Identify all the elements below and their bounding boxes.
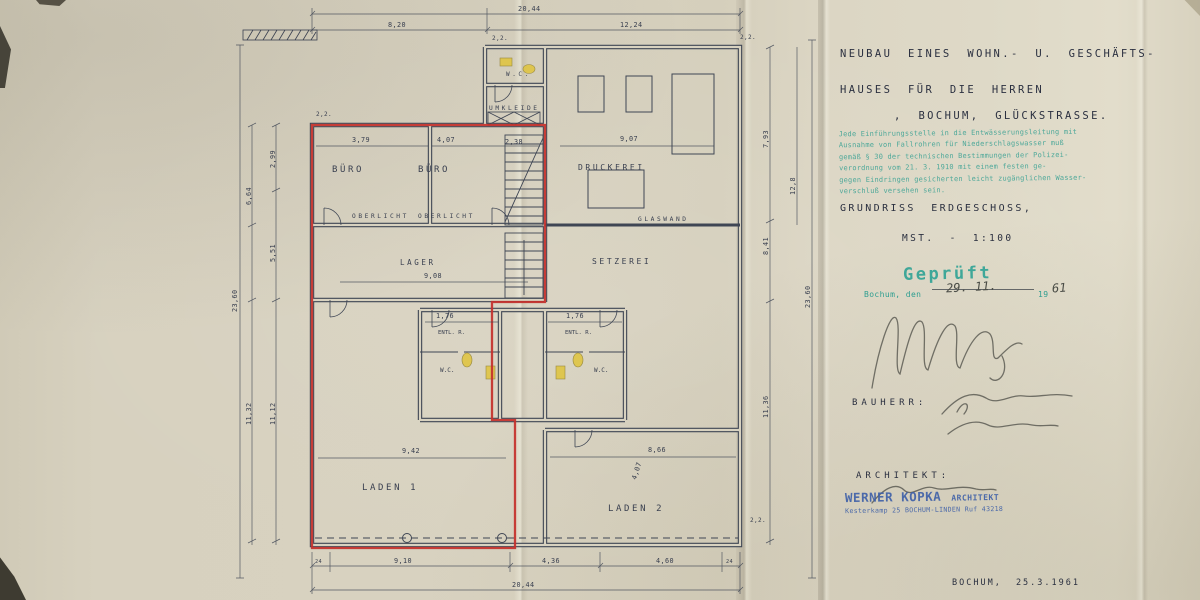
dim-laden1-w: 9,42 <box>402 447 420 455</box>
room-label-lager: LAGER <box>400 258 436 267</box>
dim-lager-w: 9,08 <box>424 272 442 280</box>
corner-mark-2: 2,2. <box>492 35 508 42</box>
room-label-umkleide: UMKLEIDE <box>489 105 540 112</box>
dim-bot-b: 4,36 <box>542 557 560 565</box>
staircase <box>505 135 543 298</box>
corner-mark-1: 2,2. <box>316 111 332 118</box>
title-line-3: , BOCHUM, GLÜCKSTRASSE. <box>894 110 1109 122</box>
dim-left-e: 11,12 <box>269 403 277 425</box>
dim-total-top: 20,44 <box>518 5 540 13</box>
room-label-wc-right: W.C. <box>594 367 608 374</box>
label-entl-right: ENTL. R. <box>565 330 592 336</box>
architect-stamp-title: ARCHITEKT <box>951 493 999 503</box>
dim-left-b: 11,32 <box>245 403 253 425</box>
corner-mark-3: 2,2. <box>740 34 756 41</box>
dim-left-d: 5,51 <box>269 244 277 262</box>
dim-laden2-w: 8,66 <box>648 446 666 454</box>
label-entl-left: ENTL. R. <box>438 330 465 336</box>
dim-right-total: 23,60 <box>804 286 812 308</box>
storefront-line <box>315 534 738 543</box>
dim-wc-right-w: 1,76 <box>566 312 584 320</box>
room-label-druckerei: DRUCKEREI <box>578 163 645 172</box>
approval-place-line: Bochum, den <box>864 290 921 299</box>
dim-24-right: 24 <box>726 559 733 565</box>
approval-year-printed: 19 <box>1038 290 1048 299</box>
dim-total-bottom: 20,44 <box>512 581 534 589</box>
approval-date-handwritten: 29. 11. <box>946 279 997 296</box>
approval-year-handwritten: 61 <box>1052 281 1067 296</box>
bauherr-signature-2 <box>948 422 1058 434</box>
corner-mark-4: 2,2. <box>750 517 766 524</box>
architect-office-stamp: WERNER KOPKAARCHITEKT Kesterkamp 25 BOCH… <box>845 485 1003 515</box>
drainage-regulation-stamp: Jede Einführungsstelle in die Entwässeru… <box>839 127 1087 198</box>
drawing-title: GRUNDRISS ERDGESCHOSS, <box>840 203 1032 214</box>
room-label-setzerei: SETZEREI <box>592 257 651 266</box>
scanned-floor-plan-sheet: BÜRO BÜRO OBERLICHT OBERLICHT LAGER DRUC… <box>0 0 1200 600</box>
title-line-1: NEUBAU EINES WOHN.- U. GESCHÄFTS- <box>840 48 1156 60</box>
room-label-laden1: LADEN 1 <box>362 483 418 493</box>
dim-buero2-w: 4,07 <box>437 136 455 144</box>
dimension-labels: 20,44 8,20 12,24 9,10 4,36 4,60 20,44 24… <box>231 5 812 589</box>
label-oberlicht-2: OBERLICHT <box>418 213 475 220</box>
room-label-laden2: LADEN 2 <box>608 504 664 514</box>
dim-left-a: 6,64 <box>245 187 253 205</box>
dim-bot-a: 9,10 <box>394 557 412 565</box>
bauherr-signature-1 <box>942 395 1072 414</box>
room-label-buero1: BÜRO <box>332 164 364 175</box>
dim-left-total: 23,60 <box>231 290 239 312</box>
dim-bot-c: 4,60 <box>656 557 674 565</box>
room-label-wc-top: W.C. <box>506 71 531 78</box>
architect-stamp-name: WERNER KOPKA <box>845 489 942 505</box>
room-label-buero2: BÜRO <box>418 164 450 175</box>
dim-right-a: 7,93 <box>762 130 770 148</box>
sheet-place-date: BOCHUM, 25.3.1961 <box>952 578 1080 588</box>
bauherr-label: BAUHERR: <box>852 398 927 408</box>
print-machines <box>578 74 714 208</box>
title-line-2: HAUSES FÜR DIE HERREN <box>840 84 1044 96</box>
walls <box>312 47 740 545</box>
existing-wall-hatch <box>243 30 317 40</box>
approval-signature <box>872 317 1022 388</box>
architekt-label: ARCHITEKT: <box>856 471 950 481</box>
dim-left-c: 2,99 <box>269 150 277 168</box>
dim-flur: 2,38 <box>505 138 523 146</box>
dim-right-b: 8,41 <box>762 237 770 255</box>
dim-wc-left-w: 1,76 <box>436 312 454 320</box>
dim-right-d: 12,8 <box>789 177 797 195</box>
dim-laden2-d: 4,07 <box>630 461 643 481</box>
label-oberlicht-1: OBERLICHT <box>352 213 409 220</box>
label-glaswand: GLASWAND <box>638 216 689 223</box>
dim-right-c: 11,36 <box>762 396 770 418</box>
dim-24-left: 24 <box>315 559 322 565</box>
dim-top-b: 12,24 <box>620 21 642 29</box>
drawing-scale: MST. - 1:100 <box>902 233 1013 244</box>
dim-top-a: 8,20 <box>388 21 406 29</box>
dim-buero1-w: 3,79 <box>352 136 370 144</box>
dim-druckerei-w: 9,07 <box>620 135 638 143</box>
room-label-wc-left: W.C. <box>440 367 454 374</box>
